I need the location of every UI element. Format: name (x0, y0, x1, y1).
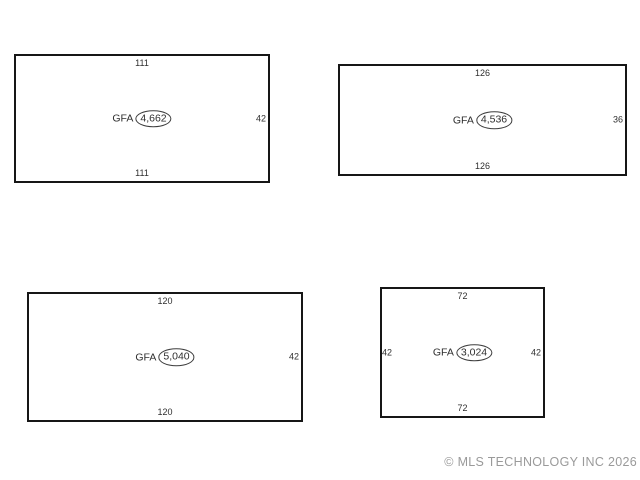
unit-outline-1: 111 111 42 GFA 4,662 (14, 54, 270, 183)
dim-label-top: 111 (135, 59, 149, 68)
dim-label-top: 72 (457, 292, 467, 301)
gfa-annotation: GFA 4,536 (453, 111, 512, 129)
unit-outline-3: 120 120 42 GFA 5,040 (27, 292, 303, 422)
gfa-annotation: GFA 5,040 (135, 348, 194, 366)
dim-label-right: 42 (531, 348, 541, 357)
dim-label-right: 42 (289, 353, 299, 362)
dim-label-right: 42 (256, 114, 266, 123)
gfa-value-oval: 3,024 (456, 344, 492, 362)
gfa-value-oval: 4,662 (135, 110, 171, 128)
dim-label-bottom: 126 (475, 162, 490, 171)
unit-outline-2: 126 126 36 GFA 4,536 (338, 64, 627, 176)
copyright-notice: © MLS TECHNOLOGY INC 2026 (444, 455, 637, 469)
gfa-annotation: GFA 3,024 (433, 344, 492, 362)
gfa-value-oval: 5,040 (158, 348, 194, 366)
gfa-label: GFA (433, 347, 454, 358)
dim-label-left: 42 (382, 348, 392, 357)
dim-label-bottom: 72 (457, 404, 467, 413)
dim-label-right: 36 (613, 116, 623, 125)
gfa-label: GFA (453, 115, 474, 126)
unit-outline-4: 72 72 42 42 GFA 3,024 (380, 287, 545, 418)
dim-label-bottom: 111 (135, 169, 149, 178)
dim-label-top: 126 (475, 69, 490, 78)
sketch-canvas: 111 111 42 GFA 4,662 126 126 36 GFA 4,53… (0, 0, 640, 480)
gfa-annotation: GFA 4,662 (112, 110, 171, 128)
dim-label-top: 120 (157, 297, 172, 306)
gfa-label: GFA (135, 352, 156, 363)
gfa-value-oval: 4,536 (476, 111, 512, 129)
dim-label-bottom: 120 (157, 408, 172, 417)
gfa-label: GFA (112, 113, 133, 124)
